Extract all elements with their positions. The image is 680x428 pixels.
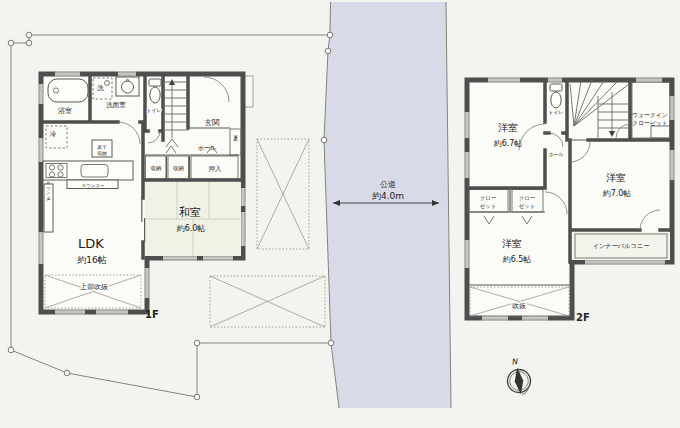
bathtub-icon	[48, 79, 88, 102]
compass-north-label: N	[511, 357, 519, 367]
ldk-size-label: 約16帖	[77, 255, 106, 265]
parking-space-1	[257, 139, 309, 249]
wic-label-2: クローゼット	[632, 120, 667, 126]
washroom-label: 洗面室	[106, 101, 126, 109]
room3-size-label: 約6.5帖	[503, 255, 532, 264]
hall-label-1f: ホール	[198, 144, 217, 151]
upper-void-label: 上部吹抜	[80, 283, 108, 291]
closet-1-label-2: ゼット	[480, 203, 496, 209]
room2-name-label: 洋室	[606, 172, 626, 183]
underfloor-label-1: 床下	[97, 144, 107, 150]
floor1-plan: 浴室 洗 洗面室 トイレ 玄関 ホール 下足入 収納 収納 押入 冷 床下 収納…	[40, 73, 253, 320]
floor2-plan: 洋室 約6.7帖 トイレ ウォークイン クローゼット ホール 洋室 約7.0帖 …	[466, 79, 673, 323]
kitchen-counter-icon	[43, 161, 133, 180]
storage-1-label: 収納	[151, 165, 162, 171]
wic-label-1: ウォークイン	[632, 112, 668, 118]
bath-label: 浴室	[58, 107, 72, 115]
ldk-name-label: LDK	[78, 236, 104, 251]
road-width-label: 約4.0m	[372, 191, 404, 201]
entrance-label: 玄関	[205, 118, 221, 127]
fridge-label: 冷	[50, 130, 57, 138]
floor1-tag: 1F	[145, 309, 159, 320]
closet-1-label-1: クロー	[480, 195, 496, 201]
room1-size-label: 約6.7帖	[494, 139, 523, 148]
toilet-icon-2f	[550, 84, 562, 108]
toilet-label-2f: トイレ	[548, 109, 563, 115]
room3-name-label: 洋室	[502, 238, 522, 249]
compass-icon: N	[504, 356, 532, 397]
vanity-sink-icon	[116, 77, 139, 96]
floor2-tag: 2F	[576, 312, 590, 323]
room2-size-label: 約7.0帖	[603, 189, 632, 198]
side-counter-label: カウンター	[46, 178, 51, 200]
toilet-icon-1f	[149, 79, 161, 103]
road-name-label: 公道	[380, 180, 396, 189]
laundry-label: 洗	[97, 84, 104, 92]
underfloor-label-2: 収納	[97, 151, 107, 156]
void-label-2f: 吹抜	[512, 302, 526, 310]
oshiire-label: 押入	[209, 165, 223, 173]
floor-plan-canvas: 公道 約4.0m	[0, 0, 680, 428]
closet-2-label-2: ゼット	[519, 203, 535, 209]
toilet-label-1f: トイレ	[146, 107, 161, 113]
road-area	[324, 2, 451, 408]
room1-name-label: 洋室	[498, 122, 518, 133]
closet-2-label-1: クロー	[519, 195, 535, 201]
washitsu-size-label: 約6.0帖	[177, 224, 206, 233]
storage-2-label: 収納	[173, 165, 184, 171]
parking-space-2	[210, 276, 325, 327]
washitsu-name-label: 和室	[179, 206, 201, 219]
hall-label-2f: ホール	[548, 151, 563, 157]
counter-label: カウンター	[82, 183, 105, 188]
floor-plan-svg: 公道 約4.0m	[0, 0, 680, 428]
inner-balcony-label: インナーバルコニー	[593, 242, 650, 249]
